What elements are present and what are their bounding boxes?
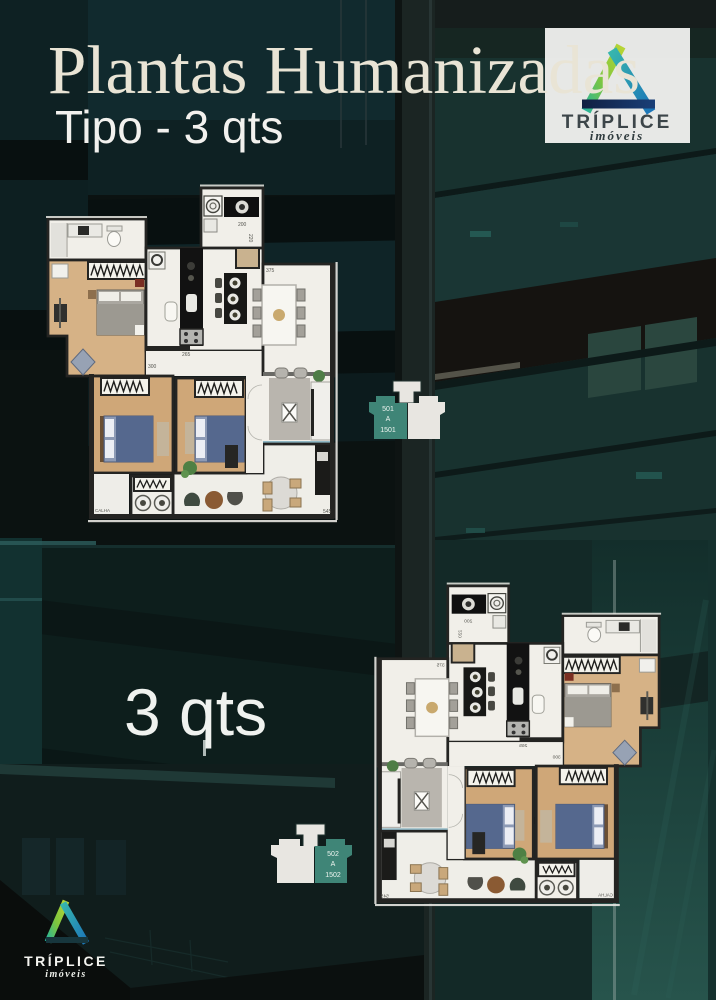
svg-text:1501: 1501 (380, 427, 396, 434)
svg-text:Plantas Humanizadas: Plantas Humanizadas (48, 32, 640, 108)
svg-text:A: A (386, 416, 391, 423)
svg-text:A: A (331, 861, 336, 868)
svg-text:3 qts: 3 qts (124, 675, 267, 749)
svg-text:imóveis: imóveis (590, 128, 644, 143)
svg-text:Tipo - 3 qts: Tipo - 3 qts (55, 101, 283, 153)
svg-text:502: 502 (327, 851, 339, 858)
svg-text:501: 501 (382, 406, 394, 413)
svg-text:1502: 1502 (325, 872, 341, 879)
svg-text:TRÍPLICE: TRÍPLICE (24, 953, 108, 969)
svg-text:imóveis: imóveis (45, 969, 87, 980)
